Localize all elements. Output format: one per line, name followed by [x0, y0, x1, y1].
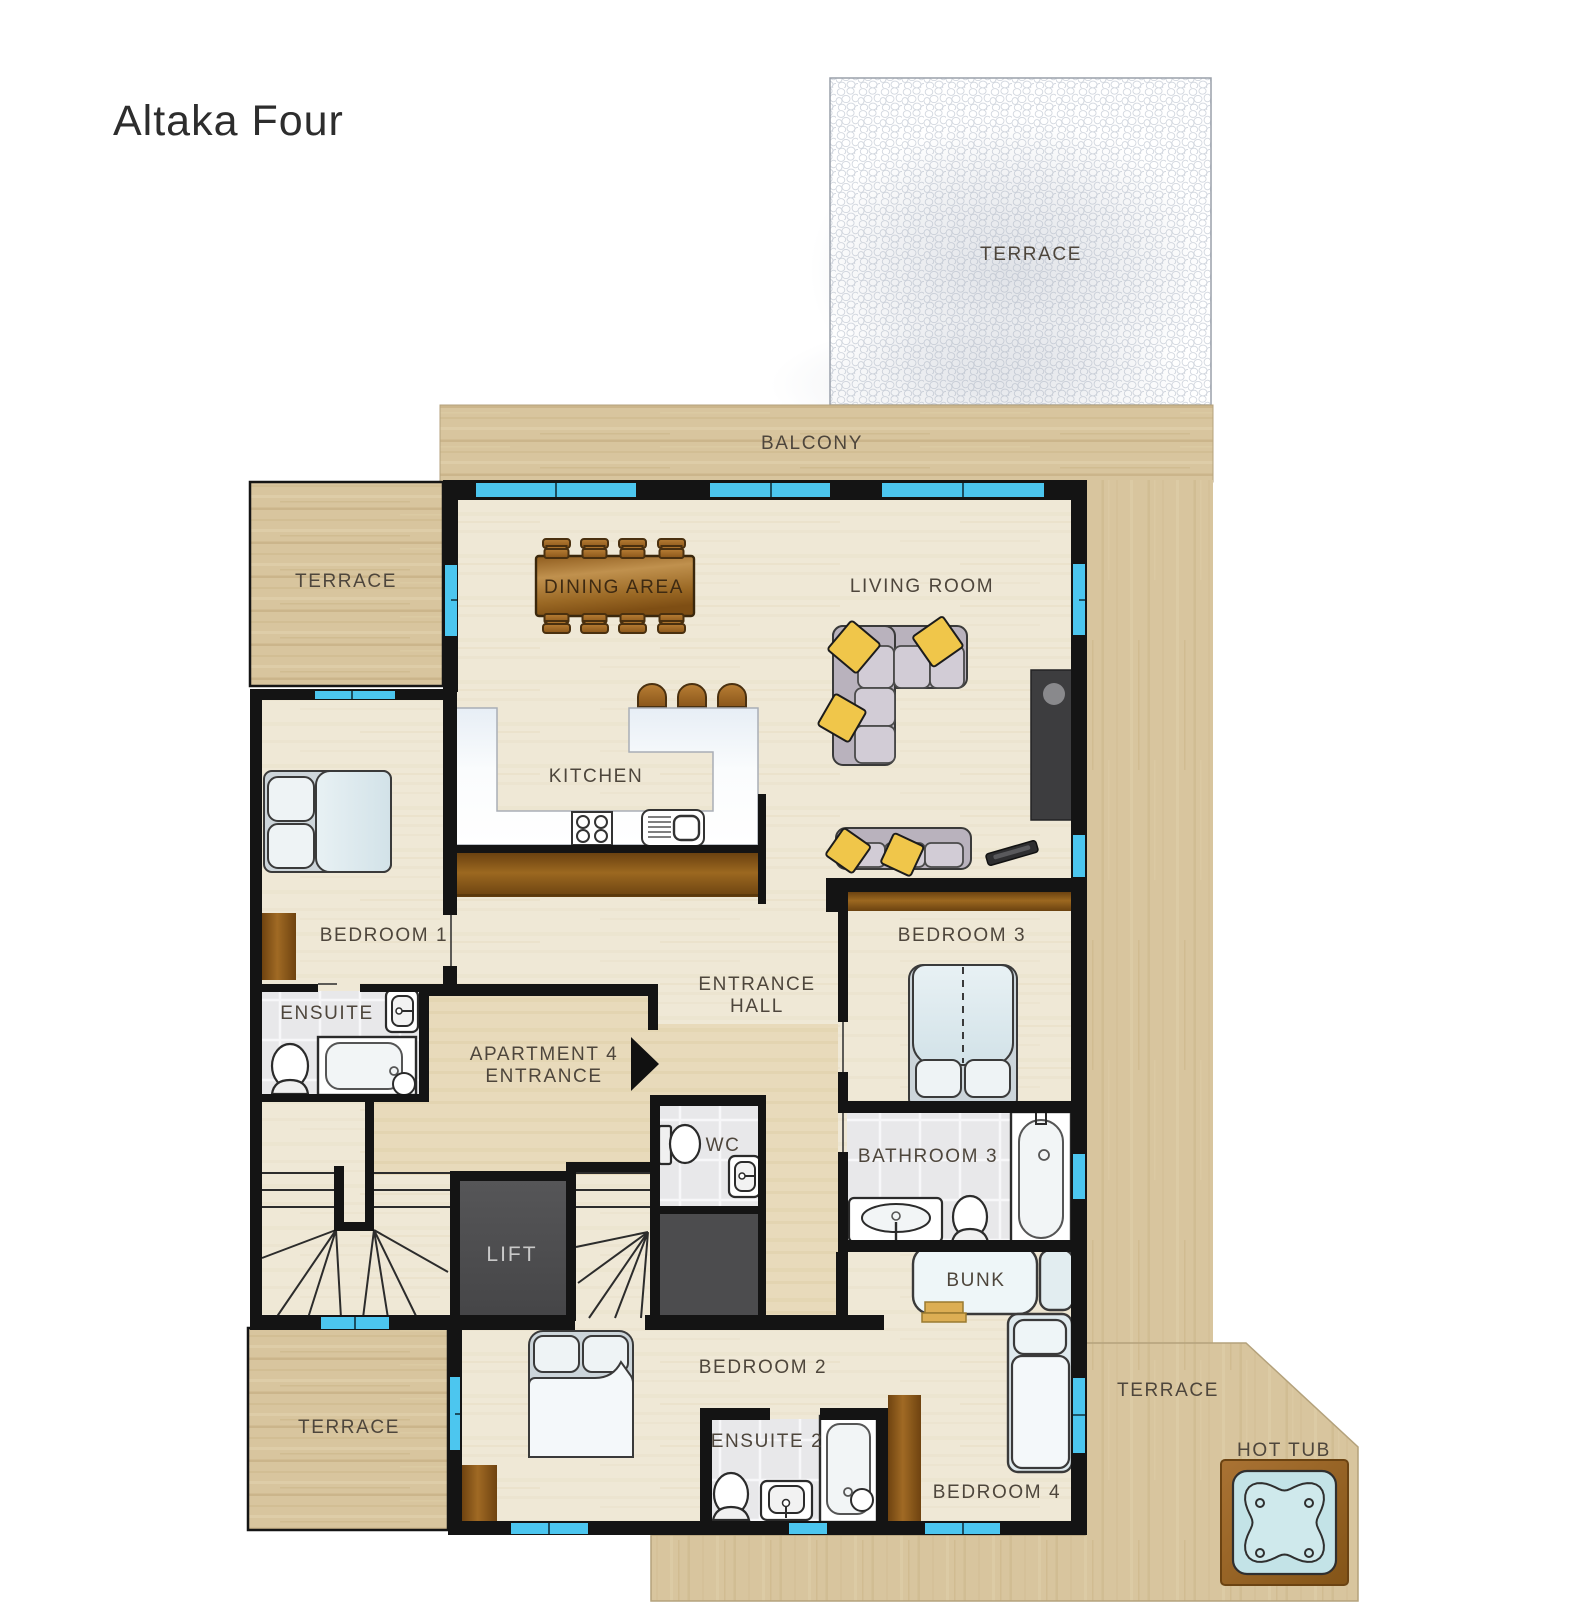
- svg-text:TERRACE: TERRACE: [295, 571, 397, 592]
- svg-text:Altaka Four: Altaka Four: [113, 97, 344, 145]
- svg-text:ENTRANCE: ENTRANCE: [485, 1066, 602, 1087]
- svg-text:ENSUITE: ENSUITE: [280, 1003, 374, 1024]
- svg-text:DINING AREA: DINING AREA: [544, 577, 684, 598]
- svg-text:KITCHEN: KITCHEN: [549, 766, 644, 787]
- svg-text:LIFT: LIFT: [486, 1243, 537, 1266]
- svg-text:ENTRANCE: ENTRANCE: [698, 974, 815, 995]
- svg-text:TERRACE: TERRACE: [1117, 1380, 1219, 1401]
- svg-text:HOT TUB: HOT TUB: [1237, 1440, 1331, 1461]
- svg-text:WC: WC: [706, 1135, 741, 1156]
- svg-text:TERRACE: TERRACE: [298, 1417, 400, 1438]
- svg-text:BEDROOM 4: BEDROOM 4: [933, 1482, 1061, 1503]
- svg-text:BALCONY: BALCONY: [761, 433, 863, 454]
- svg-text:APARTMENT 4: APARTMENT 4: [470, 1044, 619, 1065]
- svg-text:BEDROOM 1: BEDROOM 1: [320, 925, 448, 946]
- svg-text:LIVING ROOM: LIVING ROOM: [850, 576, 994, 597]
- svg-text:ENSUITE 2: ENSUITE 2: [711, 1431, 824, 1452]
- svg-text:BUNK: BUNK: [946, 1270, 1005, 1291]
- svg-text:TERRACE: TERRACE: [980, 244, 1082, 265]
- svg-text:BATHROOM 3: BATHROOM 3: [858, 1146, 998, 1167]
- svg-text:BEDROOM 3: BEDROOM 3: [898, 925, 1026, 946]
- svg-text:BEDROOM 2: BEDROOM 2: [699, 1357, 827, 1378]
- svg-text:HALL: HALL: [730, 996, 784, 1017]
